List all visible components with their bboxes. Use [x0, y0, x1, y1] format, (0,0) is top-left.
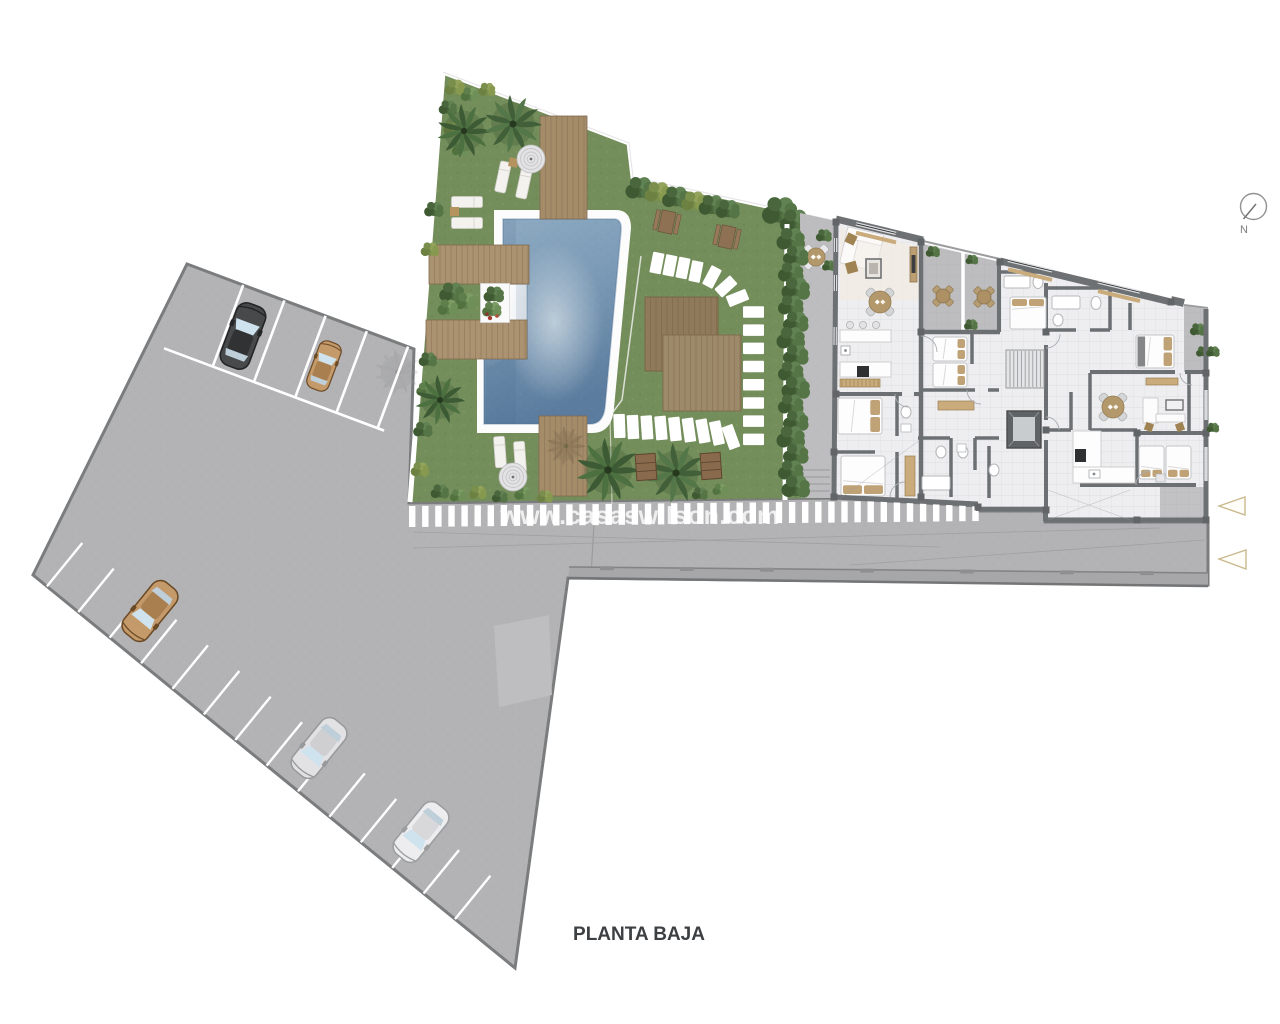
- svg-text:N: N: [1240, 224, 1248, 236]
- svg-text:www.casaswilson.com: www.casaswilson.com: [499, 502, 780, 530]
- svg-text:PLANTA BAJA: PLANTA BAJA: [573, 924, 705, 945]
